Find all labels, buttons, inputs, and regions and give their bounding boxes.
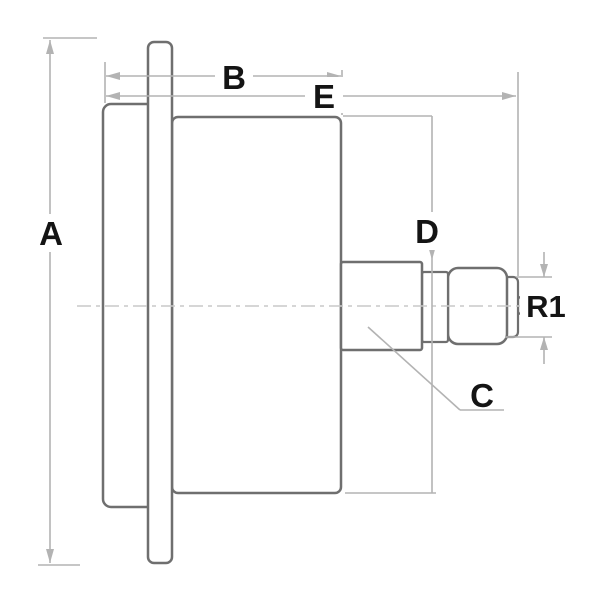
dimension-a: A	[34, 38, 97, 565]
dim-r1-arrow-down	[540, 264, 548, 277]
label-c: C	[470, 377, 494, 414]
label-d: D	[415, 213, 439, 250]
dim-e-arrow-left	[106, 92, 120, 100]
dimension-drawing: A B E D C	[0, 0, 600, 600]
dim-a-arrow-up	[46, 40, 54, 54]
mounting-flange	[148, 42, 172, 563]
case-body	[172, 117, 341, 493]
connection-boss	[341, 262, 422, 350]
label-r1: R1	[526, 289, 566, 324]
dim-r1-arrow-up	[540, 337, 548, 350]
dim-e-arrow-right	[502, 92, 516, 100]
label-a: A	[39, 215, 63, 252]
label-b: B	[222, 59, 246, 96]
label-e: E	[313, 78, 335, 115]
dim-b-arrow-left	[106, 72, 120, 80]
gauge-outline	[103, 42, 525, 563]
stem-neck	[422, 272, 448, 342]
dim-a-arrow-down	[46, 549, 54, 563]
gauge-diagram-svg: A B E D C	[0, 0, 600, 600]
